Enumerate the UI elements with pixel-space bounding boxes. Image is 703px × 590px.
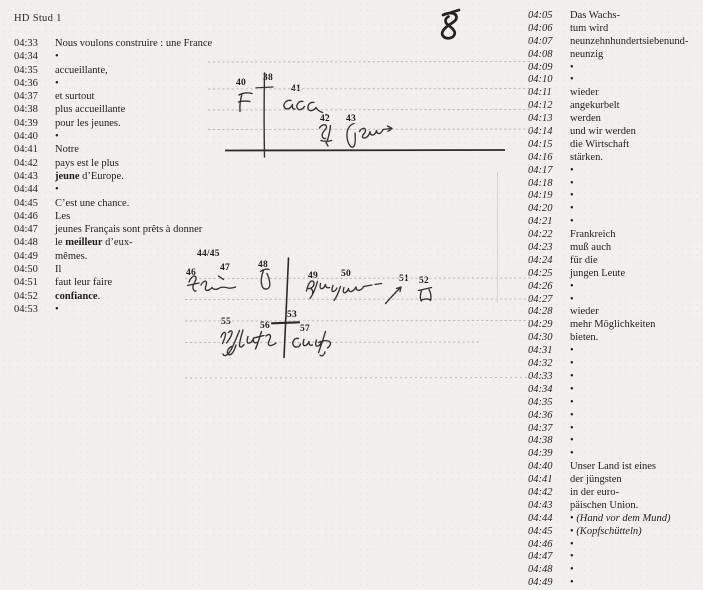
transcript-text: Frankreich bbox=[570, 229, 615, 242]
timestamp: 04:20 bbox=[528, 203, 570, 216]
transcript-row: 04:18• bbox=[528, 178, 703, 191]
transcript-row: 04:30bieten. bbox=[528, 332, 703, 345]
transcript-text: muß auch bbox=[570, 242, 611, 255]
notation-label-55: 55 bbox=[221, 317, 231, 327]
transcript-row: 04:14und wir werden bbox=[528, 126, 703, 139]
timestamp: 04:42 bbox=[14, 157, 55, 170]
transcript-text: • (Hand vor dem Mund) bbox=[570, 513, 671, 526]
notation-label-50: 50 bbox=[341, 269, 351, 279]
transcript-text: • bbox=[570, 216, 574, 229]
transcript-text: • bbox=[570, 165, 574, 178]
transcript-text: für die bbox=[570, 255, 598, 268]
transcript-text: • bbox=[570, 577, 574, 590]
timestamp: 04:28 bbox=[528, 306, 570, 319]
timestamp: 04:12 bbox=[528, 100, 570, 113]
transcript-row: 04:15die Wirtschaft bbox=[528, 139, 703, 152]
transcript-text: • bbox=[570, 281, 574, 294]
transcript-text: wieder bbox=[570, 87, 599, 100]
transcript-text: • bbox=[570, 551, 574, 564]
transcript-text: faut leur faire bbox=[55, 276, 112, 289]
transcript-row: 04:38• bbox=[528, 435, 703, 448]
timestamp: 04:33 bbox=[528, 371, 570, 384]
transcript-text: • bbox=[55, 130, 59, 143]
timestamp: 04:46 bbox=[528, 539, 570, 552]
transcript-row: 04:46• bbox=[528, 539, 703, 552]
transcript-text: jeunes Français sont prêts à donner bbox=[55, 223, 202, 236]
timestamp: 04:49 bbox=[14, 250, 55, 263]
timestamp: 04:34 bbox=[528, 384, 570, 397]
timestamp: 04:08 bbox=[528, 49, 570, 62]
timestamp: 04:53 bbox=[14, 303, 55, 316]
transcript-row: 04:27• bbox=[528, 294, 703, 307]
notation-label-44-45: 44/45 bbox=[197, 249, 220, 259]
transcript-row: 04:43jeune d’Europe. bbox=[14, 170, 514, 183]
transcript-row: 04:08neunzig bbox=[528, 49, 703, 62]
notation-label-46: 46 bbox=[186, 268, 196, 278]
notation-label-53: 53 bbox=[287, 310, 297, 320]
transcript-row: 04:07neunzehnhundertsiebenund- bbox=[528, 36, 703, 49]
transcript-text: accueillante, bbox=[55, 64, 108, 77]
notation-label-42: 42 bbox=[320, 114, 330, 124]
timestamp: 04:18 bbox=[528, 178, 570, 191]
transcript-text: • bbox=[570, 410, 574, 423]
transcript-row: 04:41Notre bbox=[14, 143, 514, 156]
transcript-row: 04:26• bbox=[528, 281, 703, 294]
notation-label-47: 47 bbox=[220, 263, 230, 273]
timestamp: 04:14 bbox=[528, 126, 570, 139]
transcript-row: 04:42pays est le plus bbox=[14, 157, 514, 170]
transcript-row: 04:05Das Wachs- bbox=[528, 10, 703, 23]
transcript-text: mehr Möglichkeiten bbox=[570, 319, 655, 332]
transcript-row: 04:40Unser Land ist eines bbox=[528, 461, 703, 474]
transcript-row: 04:16stärken. bbox=[528, 152, 703, 165]
page-header: HD Stud 1 bbox=[14, 13, 62, 24]
transcript-row: 04:33Nous voulons construire : une Franc… bbox=[14, 37, 514, 50]
timestamp: 04:34 bbox=[14, 50, 55, 63]
transcript-text: jungen Leute bbox=[570, 268, 625, 281]
timestamp: 04:17 bbox=[528, 165, 570, 178]
transcript-row: 04:23muß auch bbox=[528, 242, 703, 255]
notation-label-49: 49 bbox=[308, 271, 318, 281]
transcript-text: • bbox=[570, 423, 574, 436]
transcript-row: 04:47• bbox=[528, 551, 703, 564]
timestamp: 04:50 bbox=[14, 263, 55, 276]
timestamp: 04:21 bbox=[528, 216, 570, 229]
timestamp: 04:52 bbox=[14, 290, 55, 303]
transcript-row: 04:33• bbox=[528, 371, 703, 384]
transcript-row: 04:29mehr Möglichkeiten bbox=[528, 319, 703, 332]
timestamp: 04:39 bbox=[528, 448, 570, 461]
transcript-row: 04:51faut leur faire bbox=[14, 276, 514, 289]
transcript-text: • bbox=[570, 203, 574, 216]
transcript-row: 04:49• bbox=[528, 577, 703, 590]
timestamp: 04:38 bbox=[528, 435, 570, 448]
transcript-text: • bbox=[55, 183, 59, 196]
transcript-row: 04:48• bbox=[528, 564, 703, 577]
transcript-row: 04:37• bbox=[528, 423, 703, 436]
scanned-transcript-page: HD Stud 1 04:33Nous voulons construire :… bbox=[0, 0, 703, 589]
timestamp: 04:43 bbox=[14, 170, 55, 183]
transcript-text: • bbox=[570, 294, 574, 307]
timestamp: 04:19 bbox=[528, 190, 570, 203]
timestamp: 04:42 bbox=[528, 487, 570, 500]
timestamp: 04:38 bbox=[14, 103, 55, 116]
transcript-text: • bbox=[55, 303, 59, 316]
hw-conf bbox=[293, 332, 331, 356]
transcript-row: 04:42in der euro- bbox=[528, 487, 703, 500]
transcript-text: Il bbox=[55, 263, 61, 276]
timestamp: 04:09 bbox=[528, 62, 570, 75]
transcript-text: • bbox=[570, 178, 574, 191]
timestamp: 04:22 bbox=[528, 229, 570, 242]
transcript-row: 04:32• bbox=[528, 358, 703, 371]
transcript-text: die Wirtschaft bbox=[570, 139, 629, 152]
transcript-row: 04:41der jüngsten bbox=[528, 474, 703, 487]
notation-label-43: 43 bbox=[346, 114, 356, 124]
transcript-text: der jüngsten bbox=[570, 474, 622, 487]
transcript-text: mêmes. bbox=[55, 250, 87, 263]
timestamp: 04:40 bbox=[14, 130, 55, 143]
transcript-text: • bbox=[570, 190, 574, 203]
timestamp: 04:13 bbox=[528, 113, 570, 126]
transcript-text: pays est le plus bbox=[55, 157, 119, 170]
transcript-row: 04:17• bbox=[528, 165, 703, 178]
transcript-row: 04:12angekurbelt bbox=[528, 100, 703, 113]
transcript-row: 04:46Les bbox=[14, 210, 514, 223]
transcript-row: 04:38plus accueillante bbox=[14, 103, 514, 116]
timestamp: 04:51 bbox=[14, 276, 55, 289]
timestamp: 04:44 bbox=[528, 513, 570, 526]
timestamp: 04:46 bbox=[14, 210, 55, 223]
transcript-text: • bbox=[570, 74, 574, 87]
transcript-row: 04:22Frankreich bbox=[528, 229, 703, 242]
timestamp: 04:48 bbox=[528, 564, 570, 577]
transcript-text: Les bbox=[55, 210, 70, 223]
transcript-text: neunzehnhundertsiebenund- bbox=[570, 36, 688, 49]
transcript-text: • bbox=[55, 50, 59, 63]
transcript-row: 04:24für die bbox=[528, 255, 703, 268]
transcript-row: 04:47jeunes Français sont prêts à donner bbox=[14, 223, 514, 236]
timestamp: 04:47 bbox=[528, 551, 570, 564]
transcript-row: 04:25jungen Leute bbox=[528, 268, 703, 281]
transcript-row: 04:44• (Hand vor dem Mund) bbox=[528, 513, 703, 526]
transcript-text: • bbox=[570, 345, 574, 358]
transcript-text: confiance. bbox=[55, 290, 100, 303]
transcript-row: 04:21• bbox=[528, 216, 703, 229]
timestamp: 04:36 bbox=[14, 77, 55, 90]
transcript-text: • bbox=[570, 564, 574, 577]
timestamp: 04:48 bbox=[14, 236, 55, 249]
timestamp: 04:32 bbox=[528, 358, 570, 371]
transcript-text: päischen Union. bbox=[570, 500, 638, 513]
timestamp: 04:44 bbox=[14, 183, 55, 196]
notation-label-51: 51 bbox=[399, 274, 409, 284]
timestamp: 04:35 bbox=[14, 64, 55, 77]
transcript-row: 04:28wieder bbox=[528, 306, 703, 319]
german-transcript-column: 04:05Das Wachs-04:06tum wird04:07neunzeh… bbox=[528, 10, 703, 590]
transcript-row: 04:43päischen Union. bbox=[528, 500, 703, 513]
transcript-text: • bbox=[570, 539, 574, 552]
transcript-text: • (Kopfschütteln) bbox=[570, 526, 642, 539]
transcript-row: 04:45C’est une chance. bbox=[14, 197, 514, 210]
transcript-text: Unser Land ist eines bbox=[570, 461, 656, 474]
transcript-row: 04:45• (Kopfschütteln) bbox=[528, 526, 703, 539]
transcript-text: • bbox=[570, 397, 574, 410]
transcript-text: • bbox=[55, 77, 59, 90]
timestamp: 04:05 bbox=[528, 10, 570, 23]
transcript-text: stärken. bbox=[570, 152, 603, 165]
transcript-text: Notre bbox=[55, 143, 79, 156]
transcript-row: 04:10• bbox=[528, 74, 703, 87]
transcript-row: 04:37et surtout bbox=[14, 90, 514, 103]
notation-label-38: 38 bbox=[263, 73, 273, 83]
timestamp: 04:40 bbox=[528, 461, 570, 474]
transcript-text: wieder bbox=[570, 306, 599, 319]
transcript-text: • bbox=[570, 435, 574, 448]
timestamp: 04:25 bbox=[528, 268, 570, 281]
transcript-text: werden bbox=[570, 113, 601, 126]
transcript-text: C’est une chance. bbox=[55, 197, 129, 210]
transcript-row: 04:39pour les jeunes. bbox=[14, 117, 514, 130]
timestamp: 04:11 bbox=[528, 87, 570, 100]
transcript-row: 04:13werden bbox=[528, 113, 703, 126]
transcript-text: Das Wachs- bbox=[570, 10, 620, 23]
transcript-text: • bbox=[570, 371, 574, 384]
transcript-text: neunzig bbox=[570, 49, 603, 62]
notation-label-52: 52 bbox=[419, 276, 429, 286]
transcript-row: 04:19• bbox=[528, 190, 703, 203]
timestamp: 04:30 bbox=[528, 332, 570, 345]
timestamp: 04:31 bbox=[528, 345, 570, 358]
transcript-text: pour les jeunes. bbox=[55, 117, 121, 130]
timestamp: 04:33 bbox=[14, 37, 55, 50]
timestamp: 04:43 bbox=[528, 500, 570, 513]
timestamp: 04:06 bbox=[528, 23, 570, 36]
transcript-row: 04:35• bbox=[528, 397, 703, 410]
transcript-text: le meilleur d’eux- bbox=[55, 236, 133, 249]
timestamp: 04:49 bbox=[528, 577, 570, 590]
transcript-row: 04:20• bbox=[528, 203, 703, 216]
transcript-row: 04:48le meilleur d’eux- bbox=[14, 236, 514, 249]
timestamp: 04:35 bbox=[528, 397, 570, 410]
timestamp: 04:37 bbox=[14, 90, 55, 103]
transcript-text: et surtout bbox=[55, 90, 94, 103]
transcript-text: in der euro- bbox=[570, 487, 619, 500]
notation-label-40: 40 bbox=[236, 78, 246, 88]
transcript-text: • bbox=[570, 448, 574, 461]
transcript-text: • bbox=[570, 62, 574, 75]
timestamp: 04:27 bbox=[528, 294, 570, 307]
transcript-text: angekurbelt bbox=[570, 100, 620, 113]
timestamp: 04:45 bbox=[14, 197, 55, 210]
transcript-row: 04:09• bbox=[528, 62, 703, 75]
transcript-row: 04:40• bbox=[14, 130, 514, 143]
timestamp: 04:10 bbox=[528, 74, 570, 87]
transcript-text: bieten. bbox=[570, 332, 598, 345]
transcript-text: tum wird bbox=[570, 23, 608, 36]
timestamp: 04:15 bbox=[528, 139, 570, 152]
transcript-text: • bbox=[570, 358, 574, 371]
transcript-row: 04:53• bbox=[14, 303, 514, 316]
timestamp: 04:23 bbox=[528, 242, 570, 255]
timestamp: 04:26 bbox=[528, 281, 570, 294]
notation-label-48: 48 bbox=[258, 260, 268, 270]
transcript-row: 04:52confiance. bbox=[14, 290, 514, 303]
timestamp: 04:37 bbox=[528, 423, 570, 436]
timestamp: 04:41 bbox=[14, 143, 55, 156]
transcript-row: 04:31• bbox=[528, 345, 703, 358]
transcript-text: • bbox=[570, 384, 574, 397]
transcript-text: und wir werden bbox=[570, 126, 636, 139]
timestamp: 04:39 bbox=[14, 117, 55, 130]
transcript-row: 04:34• bbox=[14, 50, 514, 63]
transcript-text: jeune d’Europe. bbox=[55, 170, 124, 183]
transcript-row: 04:44• bbox=[14, 183, 514, 196]
transcript-row: 04:36• bbox=[528, 410, 703, 423]
notation-label-56: 56 bbox=[260, 321, 270, 331]
timestamp: 04:29 bbox=[528, 319, 570, 332]
transcript-text: plus accueillante bbox=[55, 103, 125, 116]
hw-il-faut bbox=[221, 330, 276, 356]
transcript-text: Nous voulons construire : une France bbox=[55, 37, 212, 50]
notation-label-41: 41 bbox=[291, 84, 301, 94]
timestamp: 04:47 bbox=[14, 223, 55, 236]
timestamp: 04:41 bbox=[528, 474, 570, 487]
timestamp: 04:45 bbox=[528, 526, 570, 539]
timestamp: 04:16 bbox=[528, 152, 570, 165]
transcript-row: 04:39• bbox=[528, 448, 703, 461]
timestamp: 04:36 bbox=[528, 410, 570, 423]
transcript-row: 04:11wieder bbox=[528, 87, 703, 100]
timestamp: 04:24 bbox=[528, 255, 570, 268]
transcript-row: 04:34• bbox=[528, 384, 703, 397]
notation-label-57: 57 bbox=[300, 324, 310, 334]
transcript-row: 04:06tum wird bbox=[528, 23, 703, 36]
timestamp: 04:07 bbox=[528, 36, 570, 49]
